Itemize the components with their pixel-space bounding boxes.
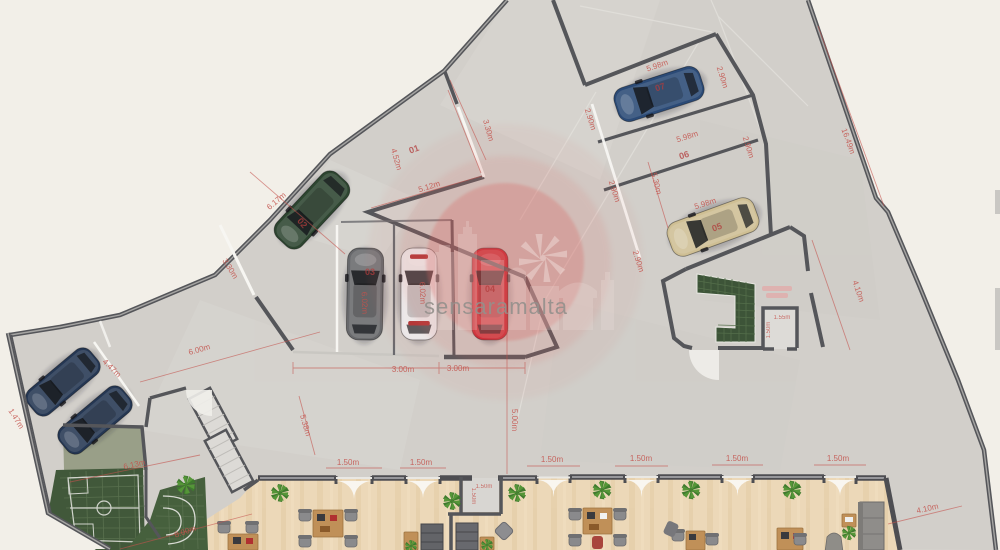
svg-text:5.00m: 5.00m bbox=[510, 409, 519, 432]
svg-text:3.00m: 3.00m bbox=[447, 364, 470, 373]
svg-text:1.50m: 1.50m bbox=[410, 458, 433, 467]
svg-text:6.02m: 6.02m bbox=[418, 282, 428, 305]
svg-text:sensaramalta: sensaramalta bbox=[424, 294, 568, 319]
svg-text:03: 03 bbox=[365, 267, 375, 277]
svg-text:1.50m: 1.50m bbox=[630, 454, 653, 463]
svg-text:1.55m: 1.55m bbox=[774, 315, 791, 321]
svg-text:3.00m: 3.00m bbox=[392, 365, 415, 374]
svg-text:1.50m: 1.50m bbox=[470, 488, 476, 505]
svg-text:1.50m: 1.50m bbox=[827, 454, 850, 463]
svg-text:04: 04 bbox=[485, 284, 495, 294]
svg-text:1.50m: 1.50m bbox=[337, 458, 360, 467]
svg-text:1.50m: 1.50m bbox=[726, 454, 749, 463]
svg-text:1.50m: 1.50m bbox=[476, 484, 493, 490]
svg-text:1.50m: 1.50m bbox=[541, 455, 564, 464]
svg-text:1.50m: 1.50m bbox=[766, 322, 772, 339]
svg-text:6.02m: 6.02m bbox=[360, 292, 370, 315]
